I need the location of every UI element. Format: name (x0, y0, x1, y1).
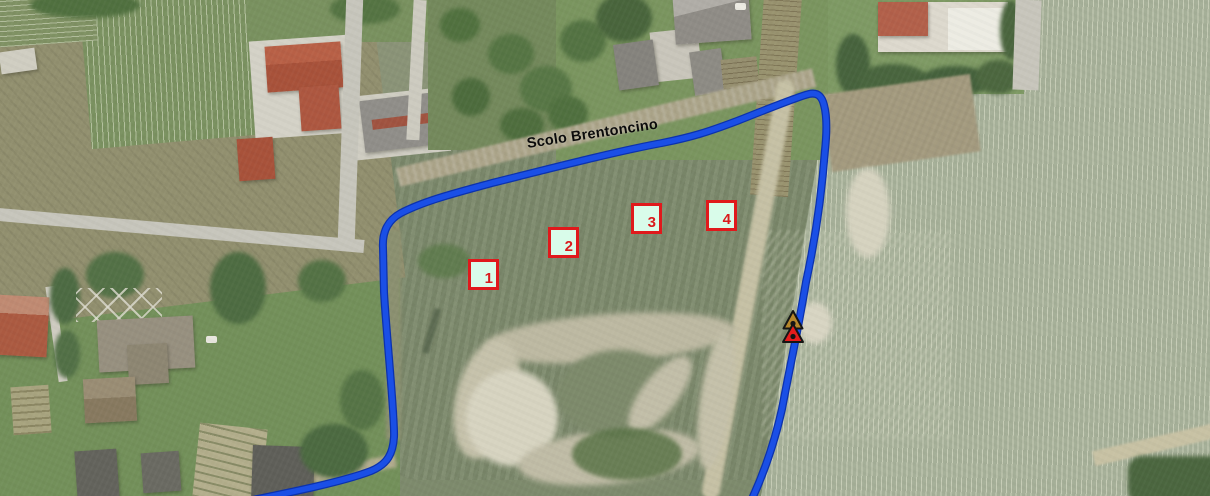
plot-number: 1 (485, 271, 493, 287)
gis-overlay (0, 0, 1210, 496)
plot-square-4[interactable]: 4 (706, 200, 737, 231)
plot-square-3[interactable]: 3 (631, 203, 662, 234)
map-canvas[interactable]: 1 2 3 4 Scolo Brentoncino (0, 0, 1210, 496)
waterway-line[interactable] (243, 94, 826, 496)
plot-number: 2 (565, 239, 573, 255)
plot-number: 3 (648, 215, 656, 231)
plot-number: 4 (723, 212, 731, 228)
plot-square-2[interactable]: 2 (548, 227, 579, 258)
plot-square-1[interactable]: 1 (468, 259, 499, 290)
waterway-line-casing (243, 94, 826, 496)
